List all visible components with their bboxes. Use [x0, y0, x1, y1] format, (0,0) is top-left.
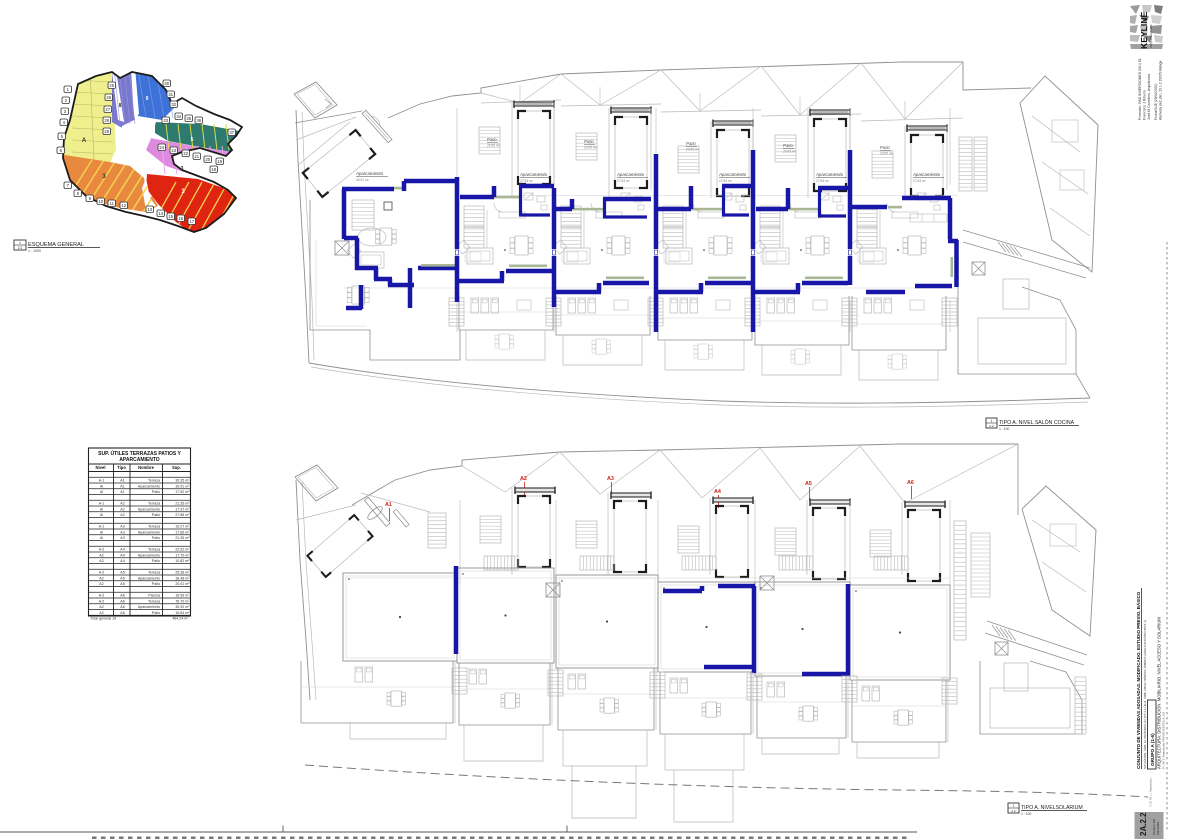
- svg-text:Al: Al: [100, 536, 103, 540]
- svg-text:Patio: Patio: [487, 137, 497, 142]
- svg-text:Terraza: Terraza: [148, 479, 160, 483]
- svg-text:A-1: A-1: [99, 502, 105, 506]
- svg-text:17.92 m²: 17.92 m²: [175, 490, 190, 494]
- svg-text:31: 31: [168, 92, 173, 97]
- svg-text:A4: A4: [120, 559, 124, 563]
- svg-text:21.35 m²: 21.35 m²: [175, 502, 190, 506]
- svg-text:11: 11: [110, 201, 115, 206]
- svg-text:Patio: Patio: [686, 141, 696, 146]
- svg-text:Al: Al: [100, 507, 103, 511]
- svg-text:A-2: A-2: [99, 594, 105, 598]
- svg-text:5: 5: [191, 137, 194, 143]
- svg-text:2A.2.2: 2A.2.2: [1139, 812, 1148, 836]
- svg-text:1: 1: [1013, 804, 1015, 808]
- svg-text:SITUACIÓN: URB. EL PEÑONCILLO: SITUACIÓN: URB. EL PEÑONCILLO (P.T.2 A U…: [1142, 620, 1147, 769]
- svg-text:2.2: 2.2: [1011, 809, 1016, 813]
- svg-text:Patio: Patio: [783, 143, 793, 148]
- svg-text:Terraza: Terraza: [148, 502, 160, 506]
- svg-text:Patio: Patio: [152, 513, 160, 517]
- svg-text:Aparcamiento: Aparcamiento: [355, 171, 384, 176]
- svg-text:20.65 m²: 20.65 m²: [685, 148, 700, 152]
- svg-text:Al: Al: [100, 530, 103, 534]
- svg-text:A5: A5: [120, 571, 124, 575]
- svg-text:Aparcamiento: Aparcamiento: [718, 172, 747, 177]
- svg-text:A5: A5: [805, 481, 812, 487]
- svg-text:A3: A3: [607, 476, 614, 482]
- svg-text:A3: A3: [120, 536, 124, 540]
- svg-text:12: 12: [121, 203, 126, 208]
- svg-text:13: 13: [147, 207, 152, 212]
- svg-text:Aparcamiento: Aparcamiento: [138, 553, 160, 557]
- svg-text:A2: A2: [99, 576, 103, 580]
- svg-text:A1: A1: [120, 490, 124, 494]
- svg-text:Patio: Patio: [880, 145, 890, 150]
- svg-text:29: 29: [104, 129, 109, 134]
- svg-text:Aparcamiento: Aparcamiento: [519, 172, 548, 177]
- svg-text:Aparcamiento: Aparcamiento: [138, 605, 160, 609]
- svg-text:Patio: Patio: [584, 139, 594, 144]
- svg-text:A-1: A-1: [99, 479, 105, 483]
- svg-text:SUP. ÚTILES TERRAZAS PATIOS Y: SUP. ÚTILES TERRAZAS PATIOS Y: [98, 450, 181, 457]
- svg-text:20.65 m²: 20.65 m²: [583, 146, 598, 150]
- svg-text:A2: A2: [99, 582, 103, 586]
- svg-text:17.54 m²: 17.54 m²: [816, 179, 830, 183]
- svg-text:17.97 m²: 17.97 m²: [175, 507, 190, 511]
- svg-text:Total general 19: Total general 19: [91, 617, 117, 621]
- svg-text:A6: A6: [120, 611, 124, 615]
- svg-text:Terraza: Terraza: [148, 525, 160, 529]
- svg-text:A5: A5: [120, 576, 124, 580]
- svg-text:A-2: A-2: [99, 548, 105, 552]
- svg-text:15: 15: [168, 214, 173, 219]
- svg-text:1: 1: [19, 241, 21, 245]
- svg-text:23: 23: [171, 148, 176, 153]
- svg-text:1 : 100: 1 : 100: [999, 427, 1009, 431]
- svg-text:A3: A3: [120, 530, 124, 534]
- svg-text:Patio: Patio: [152, 536, 160, 540]
- svg-text:20.65 m²: 20.65 m²: [782, 150, 797, 154]
- svg-text:24: 24: [159, 145, 164, 150]
- svg-text:16.59 m²: 16.59 m²: [175, 594, 190, 598]
- svg-text:Alameda deC.dén, 29 1-2 29005: Alameda deC.dén, 29 1-2 29005 Málaga: [1159, 60, 1163, 120]
- svg-text:A1: A1: [120, 484, 124, 488]
- svg-text:TIPO A. NIVELSOLARIUM: TIPO A. NIVELSOLARIUM: [1021, 805, 1083, 811]
- svg-text:Aparcamiento: Aparcamiento: [912, 172, 941, 177]
- svg-text:18: 18: [211, 167, 216, 172]
- svg-text:Aparcamiento: Aparcamiento: [815, 172, 844, 177]
- svg-text:21: 21: [194, 154, 199, 159]
- svg-text:KEYLINE: KEYLINE: [1139, 11, 1149, 49]
- svg-text:Nombre: Nombre: [138, 465, 154, 470]
- svg-text:ESQUEMA GENERAL: ESQUEMA GENERAL: [28, 242, 84, 248]
- svg-text:25: 25: [109, 83, 114, 88]
- svg-text:A2: A2: [99, 553, 103, 557]
- svg-text:14: 14: [158, 211, 163, 216]
- svg-text:19: 19: [217, 159, 222, 164]
- svg-text:A2: A2: [120, 513, 124, 517]
- svg-text:A1: A1: [120, 479, 124, 483]
- svg-text:A6: A6: [120, 594, 124, 598]
- svg-text:22: 22: [183, 151, 188, 156]
- svg-text:37: 37: [229, 130, 234, 135]
- svg-text:30.35 m²: 30.35 m²: [175, 479, 190, 483]
- svg-text:20.65 m²: 20.65 m²: [486, 144, 501, 148]
- svg-text:9: 9: [146, 96, 149, 102]
- svg-text:Tipo: Tipo: [117, 465, 126, 470]
- svg-text:17: 17: [189, 219, 194, 224]
- svg-text:32: 32: [171, 102, 176, 107]
- svg-text:Nivel: Nivel: [95, 465, 105, 470]
- svg-text:3: 3: [181, 166, 184, 172]
- svg-text:17.85 m²: 17.85 m²: [175, 530, 190, 534]
- svg-text:27: 27: [105, 107, 110, 112]
- svg-text:16: 16: [178, 216, 183, 221]
- svg-text:Terraza: Terraza: [148, 548, 160, 552]
- svg-text:A3: A3: [120, 525, 124, 529]
- svg-text:8: 8: [119, 103, 122, 109]
- svg-text:A5: A5: [120, 582, 124, 586]
- svg-text:Aparcamiento: Aparcamiento: [138, 484, 160, 488]
- svg-text:ARQUITECTURA: DISTRIBUCIÓN. MO: ARQUITECTURA: DISTRIBUCIÓN. MOBILIARIO. …: [1157, 617, 1162, 769]
- svg-text:35: 35: [186, 116, 191, 121]
- svg-text:20.01 m²: 20.01 m²: [175, 582, 190, 586]
- svg-text:2.2: 2.2: [18, 246, 23, 250]
- svg-text:21.35 m²: 21.35 m²: [175, 536, 190, 540]
- svg-text:A6: A6: [120, 605, 124, 609]
- svg-text:17.70 m²: 17.70 m²: [175, 553, 190, 557]
- svg-text:A-2: A-2: [99, 599, 105, 603]
- svg-text:DIN A1/A3: DIN A1/A3: [1156, 821, 1160, 835]
- svg-text:Al: Al: [100, 490, 103, 494]
- svg-text:30.92 m²: 30.92 m²: [175, 605, 190, 609]
- svg-text:20.65 m²: 20.65 m²: [879, 152, 894, 156]
- svg-text:Promotor: FAD INVERSIONES 2014: Promotor: FAD INVERSIONES 2014 SL: [1138, 58, 1142, 120]
- svg-text:30.91 m²: 30.91 m²: [175, 484, 190, 488]
- svg-text:A4: A4: [714, 489, 721, 495]
- svg-text:Al: Al: [100, 484, 103, 488]
- svg-text:17.54 m²: 17.54 m²: [719, 179, 733, 183]
- svg-text:ARQUITECTURA: ARQUITECTURA: [1149, 24, 1153, 48]
- svg-text:TIPO A. NIVEL SALÓN COCINA: TIPO A. NIVEL SALÓN COCINA: [999, 419, 1075, 426]
- svg-text:10: 10: [98, 199, 103, 204]
- svg-text:Piscina: Piscina: [148, 594, 160, 598]
- svg-text:1: 1: [991, 419, 993, 423]
- svg-text:Patio: Patio: [152, 559, 160, 563]
- svg-text:26: 26: [106, 95, 111, 100]
- svg-text:34: 34: [176, 114, 181, 119]
- svg-text:40.51 m²: 40.51 m²: [356, 178, 370, 182]
- svg-text:A2: A2: [99, 611, 103, 615]
- svg-text:Terraza: Terraza: [148, 571, 160, 575]
- svg-text:Fecha/SUB (29/04/2015): Fecha/SUB (29/04/2015): [1154, 84, 1158, 120]
- svg-text:18.48 m²: 18.48 m²: [175, 576, 190, 580]
- svg-text:Sup.: Sup.: [172, 465, 181, 470]
- svg-text:Patio: Patio: [152, 582, 160, 586]
- svg-text:17.54 m²: 17.54 m²: [617, 179, 631, 183]
- svg-text:A2: A2: [120, 507, 124, 511]
- svg-text:36: 36: [196, 118, 201, 123]
- svg-text:464.24 m²: 464.24 m²: [172, 617, 189, 621]
- svg-text:GRUPO A (1-6): GRUPO A (1-6): [1150, 733, 1155, 766]
- svg-text:76.70 m²: 76.70 m²: [175, 599, 190, 603]
- svg-text:A2: A2: [99, 559, 103, 563]
- svg-text:José M Carretero, Arquitectos: José M Carretero, Arquitectos: [1147, 73, 1151, 120]
- svg-text:P.I. NR 1: Reproducido PREVIR: P.I. NR 1: Reproducido PREVIR VERITELLA_…: [1162, 712, 1166, 769]
- svg-text:19.84 m²: 19.84 m²: [175, 611, 190, 615]
- svg-text:2.2: 2.2: [989, 424, 994, 428]
- svg-text:1 : 100: 1 : 100: [1021, 812, 1031, 816]
- svg-text:Aparcamiento: Aparcamiento: [616, 172, 645, 177]
- svg-text:30: 30: [164, 81, 169, 86]
- svg-text:A-2: A-2: [99, 571, 105, 575]
- svg-text:A1: A1: [385, 502, 392, 508]
- svg-text:22.62 m²: 22.62 m²: [175, 548, 190, 552]
- svg-text:25.38 m²: 25.38 m²: [175, 571, 190, 575]
- svg-text:1 : 1000: 1 : 1000: [28, 249, 41, 253]
- svg-text:Patio: Patio: [152, 490, 160, 494]
- svg-text:APARCAMIENTO: APARCAMIENTO: [119, 457, 159, 463]
- svg-text:Terraza: Terraza: [148, 599, 160, 603]
- svg-text:10.82 m²: 10.82 m²: [175, 559, 190, 563]
- svg-text:Aparcamiento: Aparcamiento: [138, 530, 160, 534]
- svg-text:28: 28: [104, 118, 109, 123]
- svg-text:A: A: [82, 138, 87, 144]
- svg-text:A2: A2: [99, 605, 103, 609]
- svg-text:17.54 m²: 17.54 m²: [913, 179, 927, 183]
- svg-text:Al: Al: [100, 513, 103, 517]
- svg-text:A6: A6: [907, 480, 914, 486]
- svg-text:A2: A2: [120, 502, 124, 506]
- svg-text:Aparcamiento: Aparcamiento: [138, 507, 160, 511]
- svg-text:20: 20: [205, 157, 210, 162]
- svg-text:Patio: Patio: [152, 611, 160, 615]
- svg-text:F1 B1 BB 1.1 Reproducido...: F1 B1 BB 1.1 Reproducido...: [1150, 776, 1153, 807]
- svg-text:A4: A4: [120, 553, 124, 557]
- svg-text:Aparcamiento: Aparcamiento: [138, 576, 160, 580]
- svg-text:A4: A4: [120, 548, 124, 552]
- svg-text:CONJUNTO DE VIVIENDAS ADOSADAS: CONJUNTO DE VIVIENDAS ADOSADAS. MODIFICA…: [1135, 591, 1141, 769]
- svg-text:17.54 m²: 17.54 m²: [520, 179, 534, 183]
- svg-text:19.27 m²: 19.27 m²: [175, 525, 190, 529]
- svg-text:27.88 m²: 27.88 m²: [175, 513, 190, 517]
- svg-text:33: 33: [163, 118, 168, 123]
- svg-text:A2: A2: [520, 476, 527, 482]
- svg-text:A6: A6: [120, 599, 124, 603]
- svg-text:A-1: A-1: [99, 525, 105, 529]
- svg-text:Francisco J Ribeiro: Francisco J Ribeiro: [1143, 90, 1147, 120]
